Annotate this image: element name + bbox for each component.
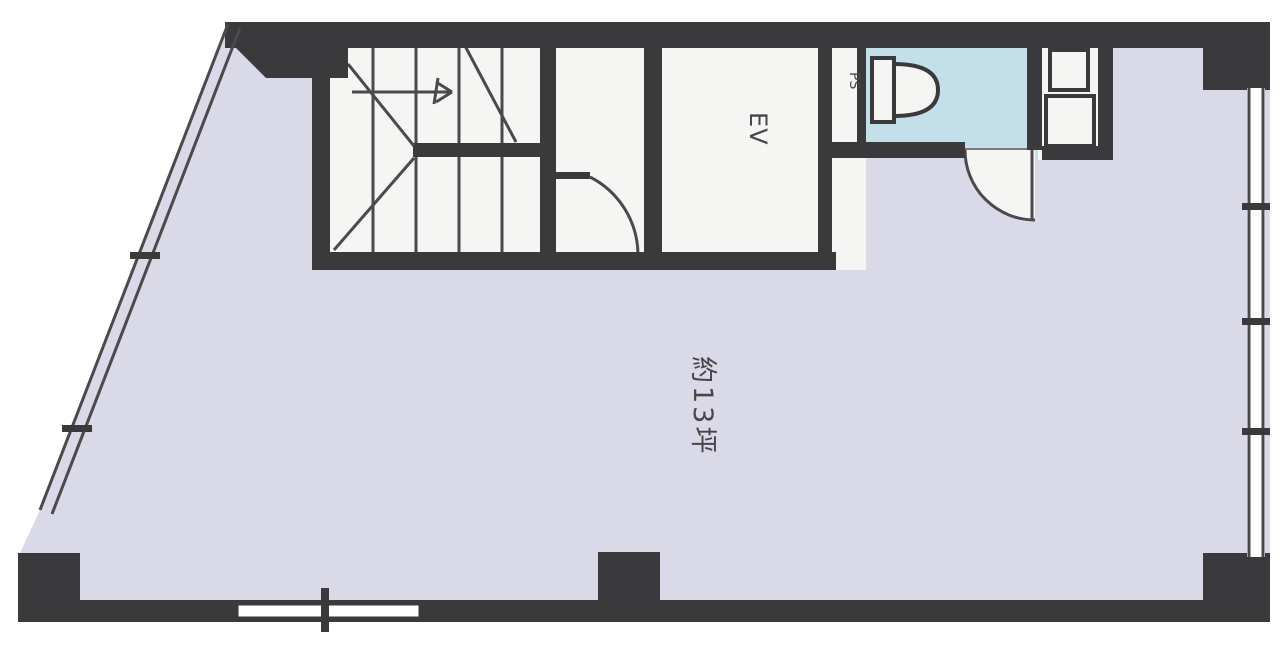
stair-hall-bottom-wall <box>312 252 836 270</box>
bottom-right-pier <box>1203 553 1270 622</box>
floor-plan: 約13坪 EV PS <box>0 0 1280 645</box>
elevator-left-wall <box>644 36 662 270</box>
basin-icon <box>1046 50 1094 146</box>
bottom-center-pier <box>598 552 660 614</box>
pipe-space-label: PS <box>846 72 862 89</box>
left-window-mullion <box>62 425 92 432</box>
stair-hall-floor <box>312 40 866 270</box>
left-window-mullion <box>130 252 160 259</box>
basin-bottom-wall <box>1042 146 1113 160</box>
toilet-right-wall <box>1027 36 1042 150</box>
right-window-mullion <box>1242 428 1270 435</box>
right-window-mullion <box>1242 203 1270 210</box>
main-room-area-label: 約13坪 <box>687 356 718 456</box>
bottom-window-mullion <box>321 588 329 632</box>
toilet-bottom-wall <box>820 142 965 158</box>
basin-right-wall <box>1098 36 1113 160</box>
bottom-left-pier <box>18 553 80 622</box>
top-right-pier <box>1203 22 1270 90</box>
right-window-mullion <box>1242 318 1270 325</box>
stair-mid-rail <box>413 143 553 157</box>
pipe-space-right-wall <box>857 36 866 158</box>
elevator-label: EV <box>744 112 772 146</box>
stair-right-wall <box>540 36 556 270</box>
floor-plan-canvas: 約13坪 EV PS <box>0 0 1280 645</box>
top-wall <box>225 22 1270 48</box>
